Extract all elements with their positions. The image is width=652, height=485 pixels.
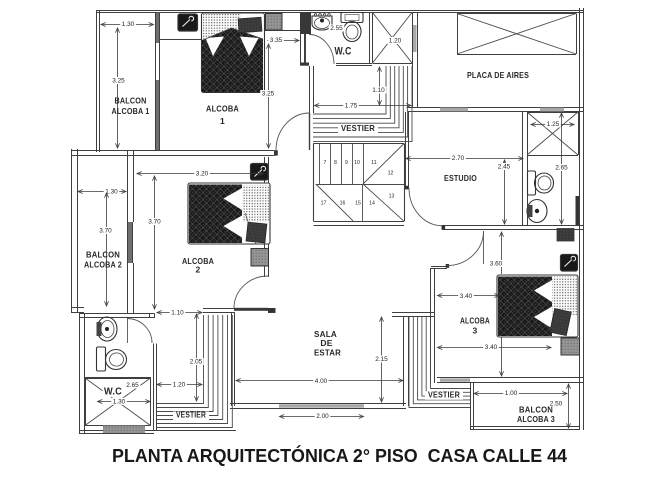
svg-text:17: 17 [321,201,327,207]
svg-text:DE: DE [320,338,332,348]
svg-text:2.55: 2.55 [330,25,343,32]
svg-text:2.15: 2.15 [375,356,388,363]
svg-text:3.40: 3.40 [485,344,498,351]
svg-text:2.70: 2.70 [452,155,465,162]
svg-text:16: 16 [340,201,346,207]
svg-text:1.25: 1.25 [547,121,560,128]
svg-text:3: 3 [473,325,478,335]
svg-text:1.20: 1.20 [389,38,402,45]
svg-text:2.65: 2.65 [126,382,139,389]
svg-text:9: 9 [345,160,348,166]
svg-text:11: 11 [371,160,376,166]
svg-text:ALCOBA 1: ALCOBA 1 [112,106,150,116]
svg-text:4.00: 4.00 [315,378,328,385]
svg-text:3.60: 3.60 [490,261,503,268]
svg-text:W.C: W.C [335,45,352,57]
svg-text:1.10: 1.10 [372,87,385,94]
svg-text:13: 13 [389,194,395,200]
svg-text:ALCOBA 3: ALCOBA 3 [517,414,555,424]
svg-text:2: 2 [196,265,201,275]
svg-text:PLACA DE AIRES: PLACA DE AIRES [467,70,529,80]
svg-text:3.25: 3.25 [112,78,125,85]
svg-text:8: 8 [334,160,337,166]
svg-text:2.45: 2.45 [498,164,511,171]
svg-text:12: 12 [388,171,394,177]
svg-text:BALCON: BALCON [86,250,120,260]
svg-text:3.70: 3.70 [148,219,161,226]
svg-text:ESTAR: ESTAR [314,348,341,358]
svg-text:1.10: 1.10 [171,310,184,317]
svg-text:ESTUDIO: ESTUDIO [444,173,477,183]
svg-text:2.05: 2.05 [190,359,203,366]
svg-text:3.25: 3.25 [262,91,275,98]
svg-text:VESTIER: VESTIER [428,389,460,399]
svg-text:1.20: 1.20 [173,382,186,389]
svg-text:1.30: 1.30 [122,21,135,28]
svg-text:15: 15 [355,201,361,207]
svg-text:10: 10 [354,160,360,166]
svg-text:1.75: 1.75 [345,103,358,110]
svg-text:3.20: 3.20 [196,171,209,178]
svg-text:ALCOBA: ALCOBA [206,104,239,114]
svg-text:1.00: 1.00 [505,390,518,397]
svg-text:VESTIER: VESTIER [176,410,206,420]
svg-text:14: 14 [369,201,375,207]
svg-text:1.30: 1.30 [105,189,118,196]
svg-text:ALCOBA 2: ALCOBA 2 [84,259,122,269]
svg-text:3.35: 3.35 [270,37,283,44]
svg-text:2.65: 2.65 [555,165,568,172]
svg-text:BALCON: BALCON [115,96,147,106]
svg-text:2.00: 2.00 [316,413,329,420]
svg-text:7: 7 [324,160,327,166]
svg-text:PLANTA ARQUITECTÓNICA 2° PISO: PLANTA ARQUITECTÓNICA 2° PISO CASA CALLE… [112,445,567,466]
svg-text:ALCOBA: ALCOBA [460,316,490,326]
svg-text:VESTIER: VESTIER [341,123,375,133]
svg-text:W.C: W.C [104,387,122,398]
svg-text:BALCON: BALCON [519,405,553,415]
svg-text:3.70: 3.70 [99,228,112,235]
svg-text:1.30: 1.30 [113,399,126,406]
svg-text:3.40: 3.40 [460,293,473,300]
svg-text:1: 1 [220,116,225,126]
